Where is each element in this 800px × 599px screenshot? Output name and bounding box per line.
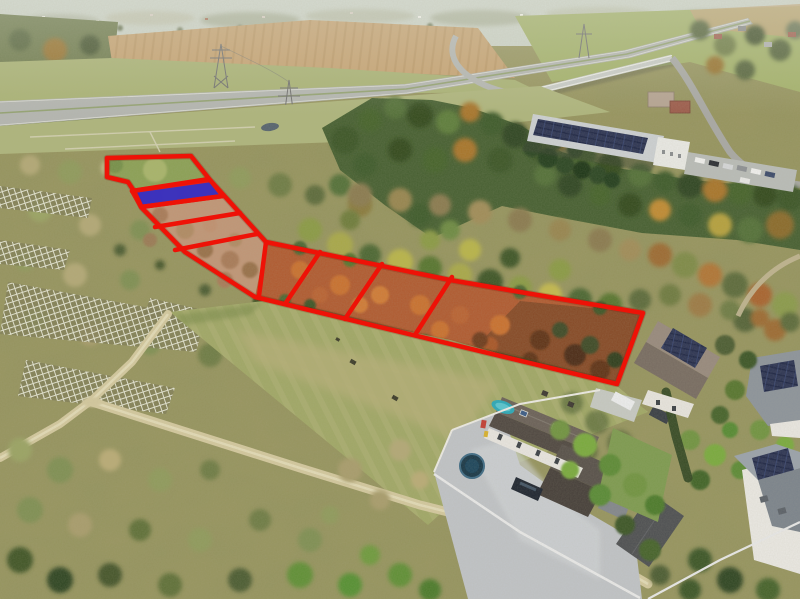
photo-grain xyxy=(0,0,800,599)
aerial-photo xyxy=(0,0,800,599)
